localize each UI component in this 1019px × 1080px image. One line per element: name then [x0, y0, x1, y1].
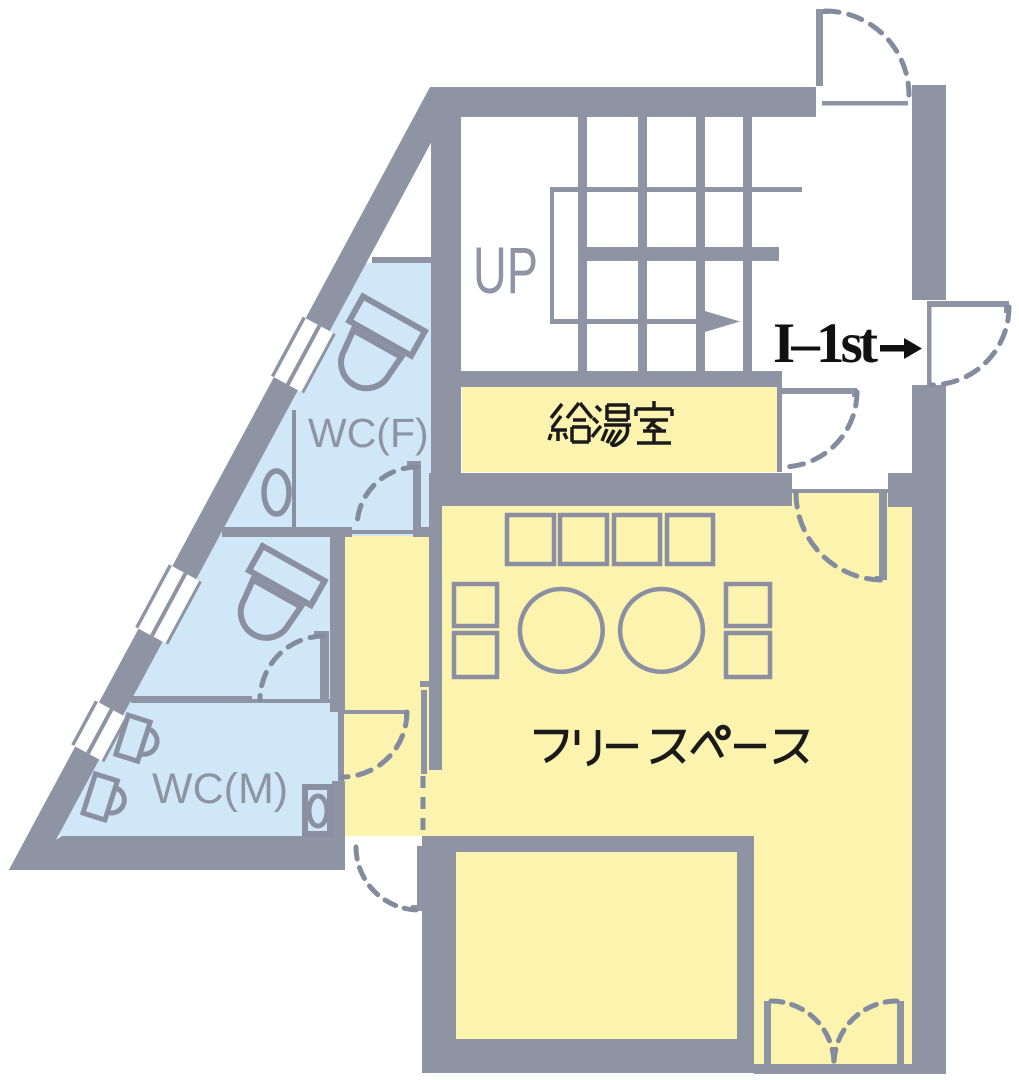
svg-text:WC(F): WC(F) [308, 410, 429, 456]
svg-text:UP: UP [473, 233, 538, 307]
svg-text:I–1st: I–1st [773, 312, 878, 375]
svg-text:WC(M): WC(M) [152, 765, 288, 813]
